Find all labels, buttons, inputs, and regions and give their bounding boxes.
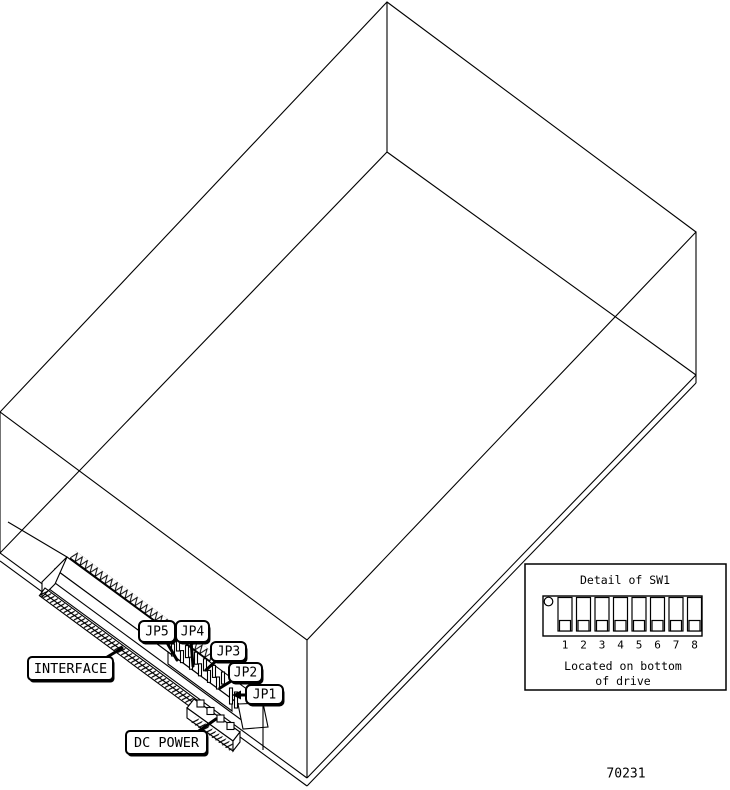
jumper-pin xyxy=(213,665,216,677)
drive-edge-bottom-right-hidden xyxy=(387,152,696,375)
part-number: 70231 xyxy=(606,767,645,782)
drive-edge-bottom-left-hidden xyxy=(0,152,387,553)
jp1-label: JP1 xyxy=(253,688,276,703)
dip-number-1: 1 xyxy=(562,639,569,652)
callout-dc-power: DC POWER xyxy=(126,731,209,757)
dc-power-pin xyxy=(227,723,234,730)
callout-jp1: JP1 xyxy=(246,685,285,707)
jp3-label: JP3 xyxy=(217,645,240,660)
callout-jp4: JP4 xyxy=(176,621,211,645)
detail-note-line2: of drive xyxy=(595,674,650,688)
dip-switch xyxy=(543,596,702,636)
dip-switch-handle xyxy=(597,621,608,632)
jumper-pin xyxy=(208,670,211,682)
callout-jp3: JP3 xyxy=(211,642,248,664)
jumper-pin xyxy=(181,651,184,663)
dip-number-4: 4 xyxy=(617,639,624,652)
dip-number-8: 8 xyxy=(691,639,698,652)
hard-drive-connector-diagram: INTERFACE DC POWER JP5 JP4 JP3 JP2 xyxy=(0,0,730,790)
jp4-label: JP4 xyxy=(181,625,205,640)
pcb-back-edge xyxy=(8,522,67,557)
interface-label: INTERFACE xyxy=(34,661,107,677)
callout-jp5: JP5 xyxy=(139,621,177,645)
dip-number-7: 7 xyxy=(673,639,680,652)
jp5-label: JP5 xyxy=(145,625,168,640)
dip-number-2: 2 xyxy=(580,639,587,652)
dip-switch-handle xyxy=(615,621,626,632)
diagram-svg: INTERFACE DC POWER JP5 JP4 JP3 JP2 xyxy=(0,0,730,790)
dc-power-label: DC POWER xyxy=(134,735,200,751)
dip-switch-handle xyxy=(689,621,700,632)
detail-note-line1: Located on bottom xyxy=(564,659,682,673)
sw1-detail-box: Detail of SW1 xyxy=(525,564,726,690)
callout-interface: INTERFACE xyxy=(28,657,115,683)
jumper-pin xyxy=(199,664,202,676)
dip-switch-handle xyxy=(560,621,571,632)
jumper-pin xyxy=(186,646,189,658)
dc-power-pin xyxy=(207,708,214,715)
drive-top-face xyxy=(0,2,696,640)
dip-number-3: 3 xyxy=(599,639,606,652)
dip-switch-handle xyxy=(671,621,682,632)
dip-switch-handle xyxy=(578,621,589,632)
dip-number-6: 6 xyxy=(654,639,661,652)
jumper-pin xyxy=(195,652,198,664)
dip-switch-handle xyxy=(652,621,663,632)
dc-power-pin xyxy=(217,715,224,722)
leader-jp4 xyxy=(191,641,193,666)
dip-number-5: 5 xyxy=(636,639,643,652)
dc-power-pin xyxy=(197,700,204,707)
dip-switch-handle xyxy=(634,621,645,632)
detail-box-title: Detail of SW1 xyxy=(580,573,670,587)
callout-labels: INTERFACE DC POWER JP5 JP4 JP3 JP2 xyxy=(28,621,285,757)
jumper-pin xyxy=(222,672,225,684)
callout-jp2: JP2 xyxy=(229,663,264,685)
dip-switch-orientation-dot xyxy=(544,597,553,606)
jp2-label: JP2 xyxy=(234,666,257,681)
